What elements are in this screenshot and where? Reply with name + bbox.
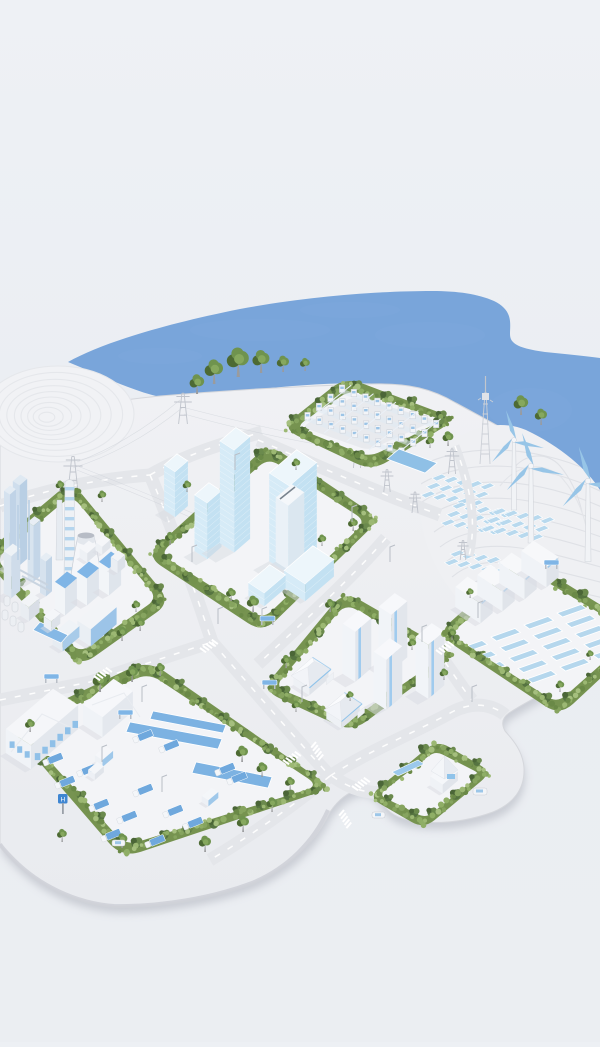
svg-text:H: H xyxy=(60,796,65,803)
